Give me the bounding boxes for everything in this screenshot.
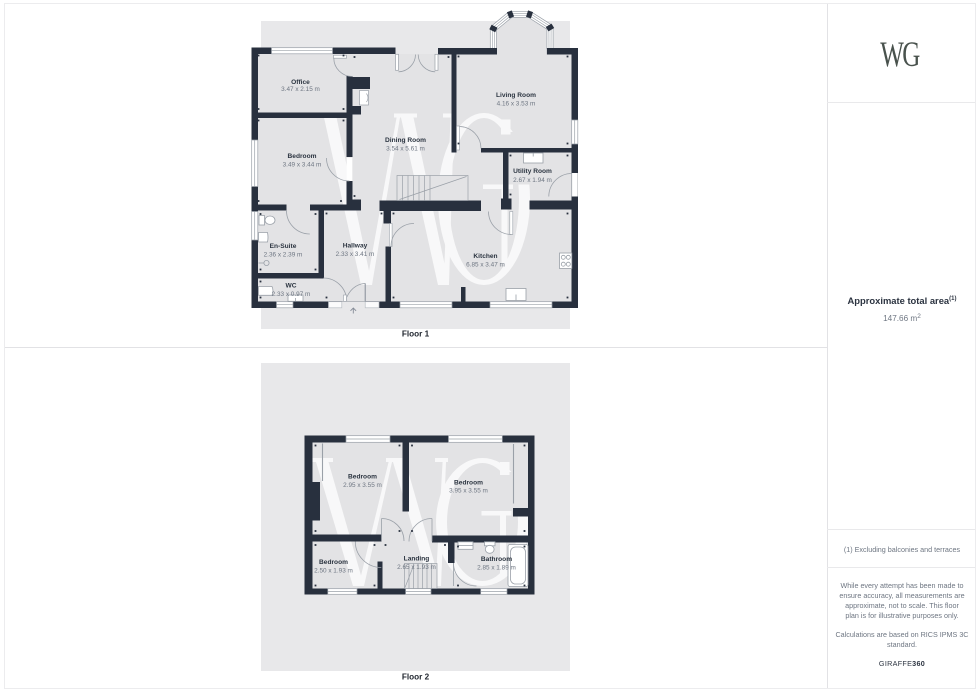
svg-text:2.95 x 3.55 m: 2.95 x 3.55 m (343, 482, 382, 489)
svg-text:WG: WG (880, 33, 920, 74)
svg-text:En-Suite: En-Suite (270, 243, 297, 250)
svg-text:3.54 x 5.61 m: 3.54 x 5.61 m (386, 145, 425, 152)
svg-text:2.33 x 3.41 m: 2.33 x 3.41 m (336, 251, 375, 258)
svg-text:6.85 x 3.47 m: 6.85 x 3.47 m (466, 262, 505, 269)
svg-text:Landing: Landing (404, 555, 430, 562)
svg-text:Bedroom: Bedroom (319, 559, 348, 566)
svg-text:2.85 x 1.89 m: 2.85 x 1.89 m (477, 565, 516, 572)
svg-text:Bedroom: Bedroom (454, 480, 483, 487)
svg-text:Floor 1: Floor 1 (402, 330, 430, 339)
svg-text:3.47 x 2.15 m: 3.47 x 2.15 m (281, 86, 320, 93)
svg-text:Hallway: Hallway (343, 243, 368, 250)
svg-text:2.50 x 1.93 m: 2.50 x 1.93 m (314, 568, 353, 575)
svg-text:Living Room: Living Room (496, 92, 536, 99)
svg-text:Bedroom: Bedroom (348, 473, 377, 480)
svg-text:2.36 x 2.39 m: 2.36 x 2.39 m (264, 251, 303, 258)
svg-text:Floor 2: Floor 2 (402, 673, 430, 682)
svg-text:3.95 x 3.55 m: 3.95 x 3.55 m (449, 488, 488, 495)
svg-text:Bedroom: Bedroom (288, 153, 317, 160)
svg-text:Kitchen: Kitchen (473, 253, 497, 260)
svg-text:4.16 x 3.53 m: 4.16 x 3.53 m (497, 100, 536, 107)
svg-text:Bathroom: Bathroom (481, 556, 512, 563)
svg-text:Dining Room: Dining Room (385, 137, 426, 144)
svg-text:2.67 x 1.94 m: 2.67 x 1.94 m (513, 177, 552, 184)
svg-text:Utility Room: Utility Room (513, 168, 552, 175)
svg-text:2.65 x 1.93 m: 2.65 x 1.93 m (397, 564, 436, 571)
svg-text:WC: WC (286, 283, 297, 290)
svg-text:3.49 x 3.44 m: 3.49 x 3.44 m (283, 162, 322, 169)
svg-text:2.33 x 0.97 m: 2.33 x 0.97 m (272, 291, 311, 298)
